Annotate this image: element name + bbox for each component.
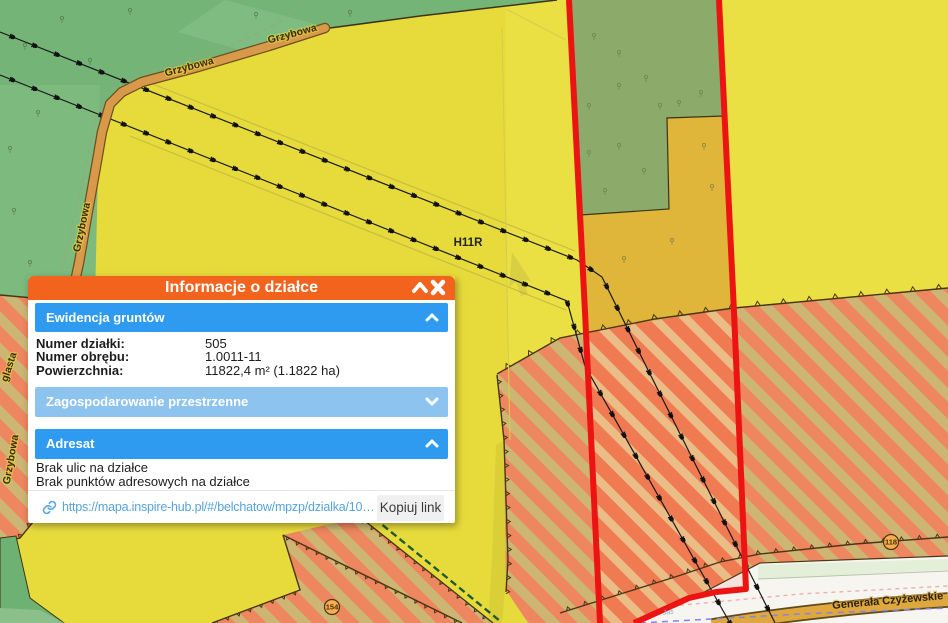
svg-text:154: 154	[326, 603, 339, 612]
svg-text:H11R: H11R	[454, 237, 483, 249]
svg-text:118: 118	[885, 538, 897, 547]
